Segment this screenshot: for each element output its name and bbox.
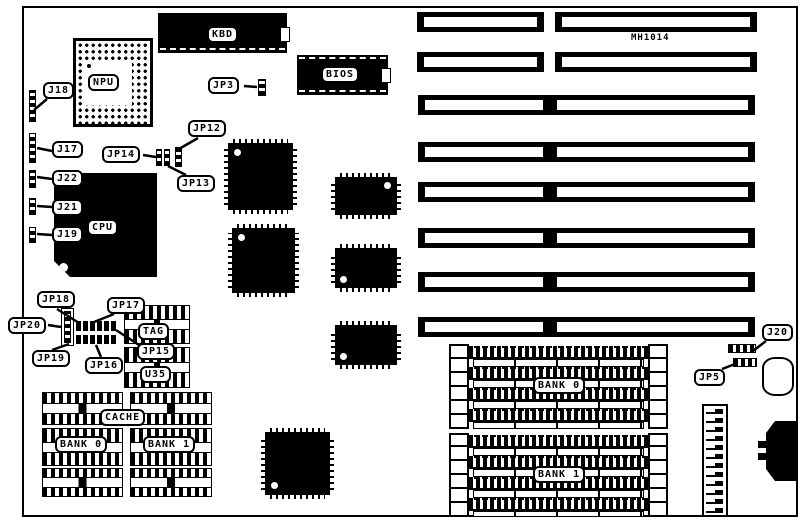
isa-slot-4-left xyxy=(418,142,550,162)
jp3-label: JP3 xyxy=(208,77,239,94)
j20-jumper xyxy=(728,344,756,353)
j21-jumper xyxy=(29,198,36,215)
jp20-jumper-box xyxy=(61,308,74,346)
simm-socket xyxy=(469,498,648,511)
simm-socket-body xyxy=(473,401,644,409)
jp14-jumper xyxy=(156,149,162,166)
qfp-chip-6 xyxy=(265,432,330,495)
j22-label: J22 xyxy=(52,170,83,187)
jumper-row-jp15-jp19 xyxy=(76,321,118,344)
qfp-chip-1 xyxy=(228,143,293,210)
j17-label: J17 xyxy=(52,141,83,158)
j22-jumper xyxy=(29,170,36,188)
jp12-jumper xyxy=(175,147,182,167)
jp19-label: JP19 xyxy=(32,350,70,367)
simm-socket xyxy=(469,409,648,422)
jp5-jumper xyxy=(733,358,757,367)
cache-bank0-chip-3 xyxy=(42,468,123,497)
kbd-chip-dashed-line xyxy=(160,48,285,50)
isa-slot-2-right xyxy=(555,52,757,72)
jp12-label: JP12 xyxy=(188,120,226,137)
din-connector-tab xyxy=(758,453,767,460)
jp17-label: JP17 xyxy=(107,297,145,314)
isa-slot-5-right xyxy=(550,182,755,202)
cache-bank1-chip-3 xyxy=(130,468,212,497)
simm-bank0-left-bracket xyxy=(449,344,469,429)
keyboard-din-connector xyxy=(766,421,798,481)
isa-slot-6-right xyxy=(550,228,755,248)
j19-jumper xyxy=(29,227,36,243)
cache-label: CACHE xyxy=(100,409,145,426)
u35-chip-label: U35 xyxy=(140,366,171,383)
isa-slot-1-right xyxy=(555,12,757,32)
kbd-chip-label: KBD xyxy=(207,26,238,43)
simm-socket xyxy=(469,435,648,448)
cpu-chip-label: CPU xyxy=(87,219,118,236)
simm-socket-body xyxy=(473,490,644,498)
isa-slot-5-left xyxy=(418,182,550,202)
qfp-chip-5 xyxy=(335,325,397,365)
din-connector-tab xyxy=(758,441,767,448)
j21-label: J21 xyxy=(52,199,83,216)
simm-socket-body xyxy=(473,422,644,429)
bios-chip-notch xyxy=(381,68,391,83)
j19-label: J19 xyxy=(52,226,83,243)
isa-slot-7-right xyxy=(550,272,755,292)
jp13-label: JP13 xyxy=(177,175,215,192)
simm-bank1-left-bracket xyxy=(449,433,469,517)
simm-socket-body xyxy=(473,448,644,456)
npu-pin1-dot xyxy=(87,64,91,68)
simm-socket xyxy=(469,346,648,359)
cache-bank1-label: BANK 1 xyxy=(143,436,195,453)
board-id: MH1014 xyxy=(631,33,670,43)
qfp-chip-3 xyxy=(335,177,397,215)
isa-slot-6-left xyxy=(418,228,550,248)
jp5-label: JP5 xyxy=(694,369,725,386)
isa-slot-3-left xyxy=(418,95,550,115)
isa-slot-8-right xyxy=(550,317,755,337)
jp13-jumper xyxy=(164,149,170,166)
j20-label: J20 xyxy=(762,324,793,341)
jp16-label: JP16 xyxy=(85,357,123,374)
jp18-label: JP18 xyxy=(37,291,75,308)
jp3-jumper xyxy=(258,79,266,96)
memory-bank0-label: BANK 0 xyxy=(533,377,585,394)
jp20-label: JP20 xyxy=(8,317,46,334)
cache-bank0-label: BANK 0 xyxy=(55,436,107,453)
bios-chip-label: BIOS xyxy=(321,66,359,83)
isa-slot-4-right xyxy=(550,142,755,162)
bios-chip-dashed-bottom xyxy=(299,90,386,92)
jp14-label: JP14 xyxy=(102,146,140,163)
j18-label: J18 xyxy=(43,82,74,99)
kbd-chip-notch xyxy=(280,27,290,42)
j17-jumper xyxy=(29,133,36,163)
tag-chip-label: TAG xyxy=(138,323,169,340)
isa-slot-1-left xyxy=(417,12,544,32)
power-connector-pins xyxy=(715,408,723,513)
isa-slot-3-right xyxy=(550,95,755,115)
isa-slot-2-left xyxy=(417,52,544,72)
simm-bank1-right-bracket xyxy=(648,433,668,517)
battery xyxy=(762,357,794,396)
bios-chip-dashed-top xyxy=(299,57,386,59)
isa-slot-8-left xyxy=(418,317,550,337)
isa-slot-7-left xyxy=(418,272,550,292)
npu-chip-label: NPU xyxy=(88,74,119,91)
jp20-jumper xyxy=(64,311,71,343)
simm-bank0-right-bracket xyxy=(648,344,668,429)
simm-socket-body xyxy=(473,359,644,367)
memory-bank1-label: BANK 1 xyxy=(533,466,585,483)
simm-socket-body xyxy=(473,511,644,517)
j18-jumper xyxy=(29,90,36,122)
power-connector xyxy=(702,404,728,517)
motherboard-diagram: MH1014 NPU KBD BIOS JP3 J18 J17 J22 J2 xyxy=(0,0,807,524)
qfp-chip-4 xyxy=(335,248,397,288)
jp15-label: JP15 xyxy=(137,343,175,360)
qfp-chip-2 xyxy=(232,228,295,293)
